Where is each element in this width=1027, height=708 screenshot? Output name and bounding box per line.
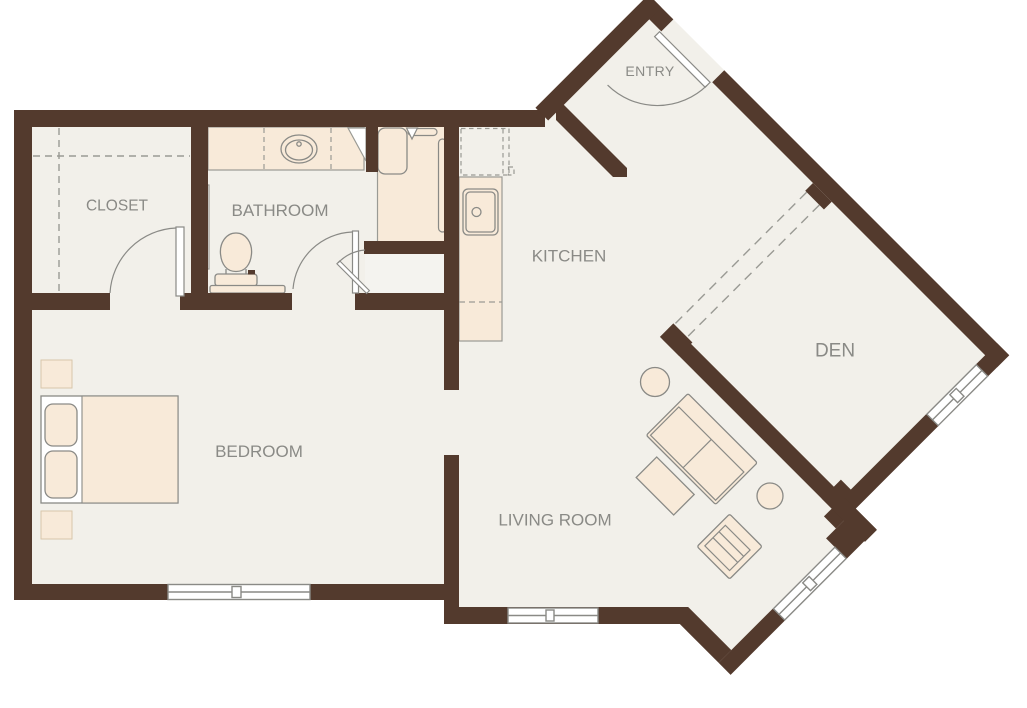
svg-text:CLOSET: CLOSET — [86, 198, 149, 215]
svg-text:ENTRY: ENTRY — [625, 63, 674, 79]
svg-text:BEDROOM: BEDROOM — [215, 442, 303, 461]
svg-text:DEN: DEN — [815, 341, 855, 362]
svg-text:LIVING ROOM: LIVING ROOM — [498, 511, 611, 530]
svg-text:KITCHEN: KITCHEN — [532, 247, 607, 266]
svg-text:BATHROOM: BATHROOM — [232, 201, 329, 220]
